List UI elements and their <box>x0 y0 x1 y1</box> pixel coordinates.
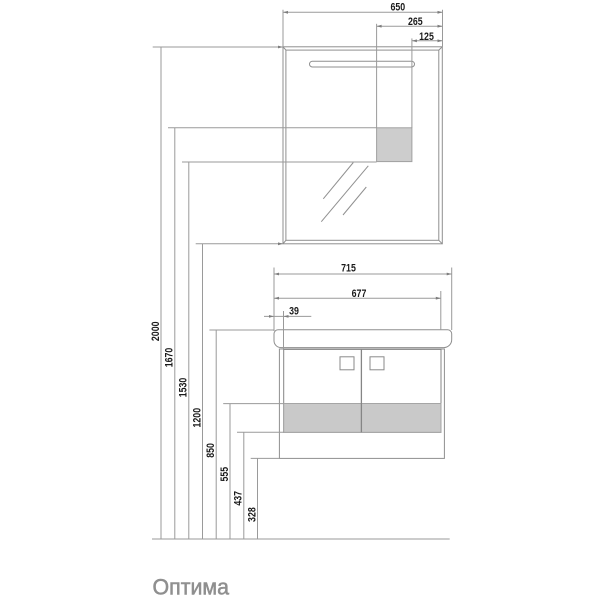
svg-text:265: 265 <box>408 16 423 28</box>
svg-text:437: 437 <box>233 491 245 506</box>
svg-text:Оптима: Оптима <box>153 575 230 600</box>
svg-text:677: 677 <box>352 288 367 300</box>
svg-text:650: 650 <box>390 2 405 14</box>
svg-text:1200: 1200 <box>191 408 203 428</box>
svg-text:850: 850 <box>205 443 217 458</box>
svg-text:2000: 2000 <box>150 322 162 342</box>
svg-text:555: 555 <box>219 467 231 482</box>
svg-text:1530: 1530 <box>178 378 190 398</box>
svg-text:39: 39 <box>289 306 299 318</box>
svg-text:1670: 1670 <box>164 348 176 368</box>
svg-text:328: 328 <box>246 507 258 522</box>
svg-text:715: 715 <box>341 263 356 275</box>
svg-text:125: 125 <box>419 31 434 43</box>
